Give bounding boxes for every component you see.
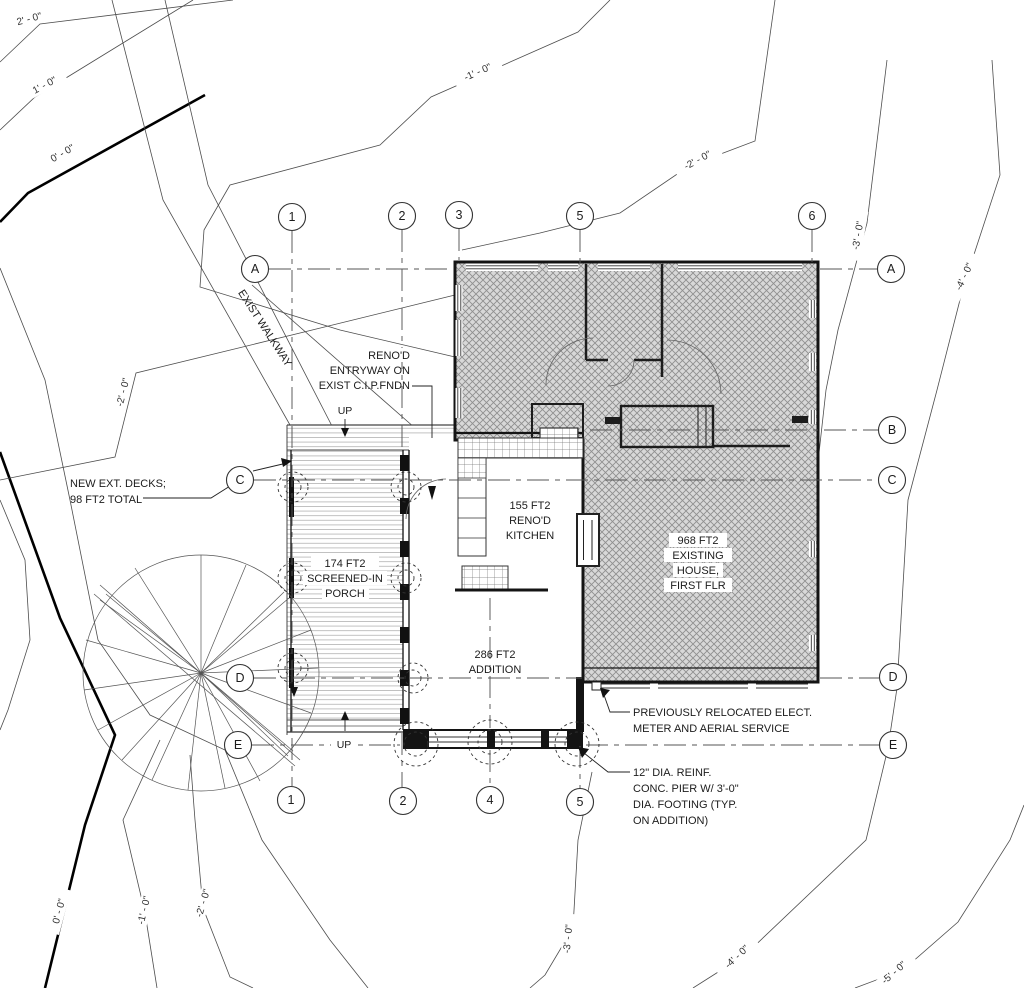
contour-label: -2' - 0" bbox=[115, 377, 133, 408]
svg-text:DIA. FOOTING (TYP.: DIA. FOOTING (TYP. bbox=[633, 799, 737, 811]
grid-bubble-E-right: E bbox=[880, 732, 907, 759]
grid-bubble-5-bottom: 5 bbox=[567, 789, 594, 816]
svg-text:98 FT2 TOTAL: 98 FT2 TOTAL bbox=[70, 494, 142, 506]
svg-text:PREVIOUSLY RELOCATED ELECT.: PREVIOUSLY RELOCATED ELECT. bbox=[633, 707, 812, 719]
svg-text:E: E bbox=[234, 738, 242, 752]
svg-text:A: A bbox=[251, 262, 260, 276]
contour-label: -3' - 0" bbox=[851, 220, 867, 251]
grid-bubble-5-top: 5 bbox=[567, 203, 594, 230]
svg-text:FIRST FLR: FIRST FLR bbox=[670, 580, 725, 592]
contour-label: -2' - 0" bbox=[194, 887, 213, 918]
electric-meter bbox=[592, 682, 601, 690]
svg-text:1: 1 bbox=[288, 793, 295, 807]
svg-text:3: 3 bbox=[456, 208, 463, 222]
top-wall-windows bbox=[466, 264, 802, 272]
grid-bubble-1-bottom: 1 bbox=[278, 787, 305, 814]
site-plan-drawing: 1 2 3 5 6 1 2 4 5 A C D E A B C D E 2' -… bbox=[0, 0, 1024, 988]
svg-text:EXIST WALKWAY: EXIST WALKWAY bbox=[235, 288, 294, 370]
svg-text:286 FT2: 286 FT2 bbox=[475, 649, 516, 661]
contour-label: -2' - 0" bbox=[683, 149, 714, 172]
svg-text:968 FT2: 968 FT2 bbox=[678, 535, 719, 547]
up-label-bottom: UP bbox=[337, 739, 352, 751]
svg-text:CONC. PIER W/ 3'-0": CONC. PIER W/ 3'-0" bbox=[633, 783, 739, 795]
grid-bubble-C-left: C bbox=[227, 467, 254, 494]
kitchen-island bbox=[462, 566, 508, 590]
grid-bubble-3-top: 3 bbox=[446, 202, 473, 229]
kitchen-label: 155 FT2 RENO'D KITCHEN bbox=[506, 500, 554, 542]
svg-text:D: D bbox=[235, 671, 244, 685]
svg-text:2: 2 bbox=[400, 794, 407, 808]
svg-text:2: 2 bbox=[399, 209, 406, 223]
svg-text:A: A bbox=[887, 262, 896, 276]
svg-text:ENTRYWAY ON: ENTRYWAY ON bbox=[330, 365, 410, 377]
entry-note: RENO'D ENTRYWAY ON EXIST C.I.P.FNDN bbox=[319, 348, 414, 392]
svg-text:KITCHEN: KITCHEN bbox=[506, 530, 554, 542]
svg-text:E: E bbox=[889, 738, 897, 752]
svg-text:174 FT2: 174 FT2 bbox=[325, 558, 366, 570]
grid-bubble-A-right: A bbox=[878, 256, 905, 283]
svg-text:5: 5 bbox=[577, 209, 584, 223]
svg-text:SCREENED-IN: SCREENED-IN bbox=[307, 573, 383, 585]
svg-text:5: 5 bbox=[577, 795, 584, 809]
contour-label: 0' - 0" bbox=[49, 142, 77, 164]
screen-post bbox=[289, 648, 294, 688]
grid-bubble-4-bottom: 4 bbox=[477, 787, 504, 814]
svg-text:NEW EXT. DECKS;: NEW EXT. DECKS; bbox=[70, 478, 166, 490]
kitchen-wall-opening bbox=[577, 514, 599, 566]
pier-note: 12" DIA. REINF. CONC. PIER W/ 3'-0" DIA.… bbox=[633, 767, 739, 827]
svg-text:C: C bbox=[887, 473, 896, 487]
contour-label: 2' - 0" bbox=[16, 11, 44, 28]
contour-label: 0' - 0" bbox=[51, 897, 68, 925]
tree-canopy bbox=[83, 555, 319, 791]
svg-text:C: C bbox=[235, 473, 244, 487]
svg-text:HOUSE,: HOUSE, bbox=[677, 565, 719, 577]
contour-label: -5' - 0" bbox=[880, 959, 909, 986]
grid-bubble-6-top: 6 bbox=[799, 203, 826, 230]
svg-text:RENO'D: RENO'D bbox=[509, 515, 551, 527]
contour-label: -3' - 0" bbox=[562, 924, 576, 954]
addition-region bbox=[400, 437, 584, 748]
grid-bubble-2-bottom: 2 bbox=[390, 788, 417, 815]
screen-post bbox=[289, 477, 294, 517]
grid-bubble-D-right: D bbox=[880, 664, 907, 691]
svg-text:B: B bbox=[888, 423, 896, 437]
addition-east-wall bbox=[576, 677, 584, 732]
grid-bubble-2-top: 2 bbox=[389, 203, 416, 230]
svg-text:155 FT2: 155 FT2 bbox=[510, 500, 551, 512]
grid-bubble-C-right: C bbox=[879, 467, 906, 494]
svg-text:METER AND AERIAL SERVICE: METER AND AERIAL SERVICE bbox=[633, 723, 790, 735]
elect-meter-note: PREVIOUSLY RELOCATED ELECT. METER AND AE… bbox=[633, 707, 812, 735]
exist-walkway bbox=[112, 0, 415, 428]
svg-text:PORCH: PORCH bbox=[325, 588, 365, 600]
grid-bubble-D-left: D bbox=[227, 665, 254, 692]
svg-text:D: D bbox=[888, 670, 897, 684]
grid-bubble-B-right: B bbox=[879, 417, 906, 444]
left-wall-windows bbox=[456, 285, 463, 418]
decks-note: NEW EXT. DECKS; 98 FT2 TOTAL bbox=[70, 478, 166, 506]
grid-bubble-E-left: E bbox=[225, 732, 252, 759]
contour-label: -1' - 0" bbox=[136, 895, 153, 926]
svg-text:ON ADDITION): ON ADDITION) bbox=[633, 815, 708, 827]
svg-text:RENO'D: RENO'D bbox=[368, 350, 410, 362]
svg-text:EXISTING: EXISTING bbox=[672, 550, 723, 562]
contour-label: -4' - 0" bbox=[723, 943, 752, 971]
contour-label: -4' - 0" bbox=[954, 261, 976, 292]
svg-text:12" DIA. REINF.: 12" DIA. REINF. bbox=[633, 767, 711, 779]
svg-text:1: 1 bbox=[289, 210, 296, 224]
svg-text:6: 6 bbox=[809, 209, 816, 223]
svg-text:EXIST C.I.P.FNDN: EXIST C.I.P.FNDN bbox=[319, 380, 410, 392]
screen-post bbox=[289, 558, 294, 598]
kitchen-counter-top bbox=[458, 438, 583, 458]
contour-label: -1' - 0" bbox=[463, 62, 494, 84]
svg-text:4: 4 bbox=[487, 793, 494, 807]
up-label-top: UP bbox=[338, 405, 353, 417]
walkway-label: EXIST WALKWAY bbox=[235, 288, 294, 370]
grid-bubble-A-left: A bbox=[242, 256, 269, 283]
svg-text:ADDITION: ADDITION bbox=[469, 664, 522, 676]
grid-bubble-1-top: 1 bbox=[279, 204, 306, 231]
contour-label: 1' - 0" bbox=[31, 75, 59, 97]
